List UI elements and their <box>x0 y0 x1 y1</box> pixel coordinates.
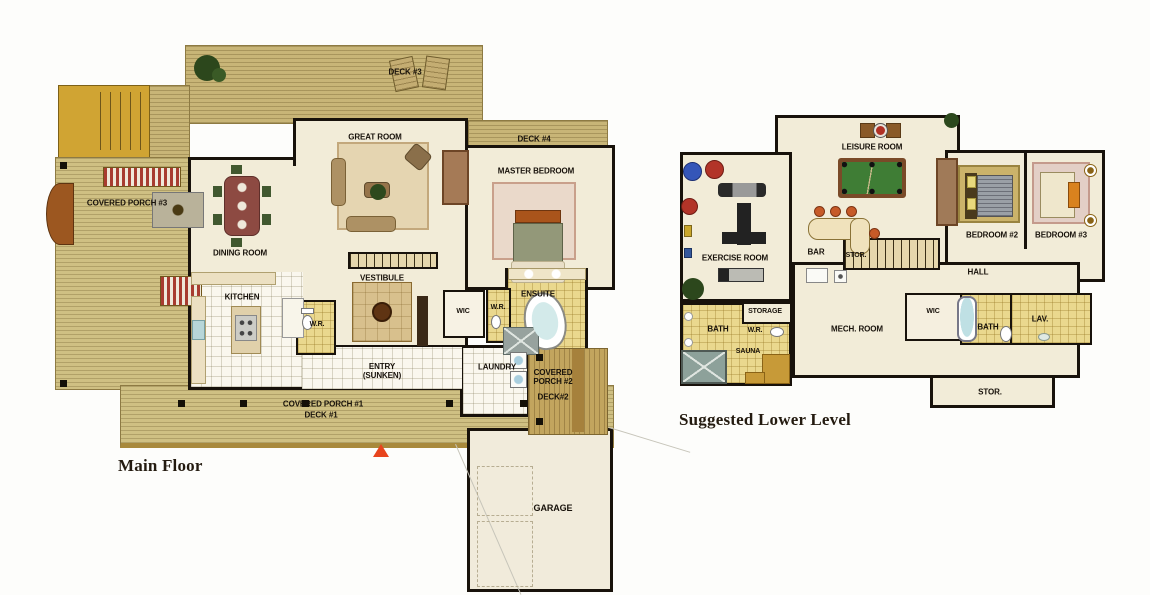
room-label-deck2: DECK#2 <box>538 392 569 401</box>
nightstand <box>1084 214 1097 227</box>
pillow <box>967 198 976 210</box>
porch-post <box>536 418 543 425</box>
plant <box>944 113 959 128</box>
game-cabinet <box>886 123 901 138</box>
room-label-wic-lower: WIC <box>926 308 939 316</box>
tv-cabinet <box>417 296 428 346</box>
room-label-leisure-room: LEISURE ROOM <box>842 142 903 151</box>
room-label-dining-room: DINING ROOM <box>213 248 267 257</box>
porch-post <box>536 354 543 361</box>
room-label-bath-right: BATH <box>977 322 998 331</box>
plant <box>212 68 226 82</box>
porch-bench <box>103 167 181 187</box>
room-label-kitchen: KITCHEN <box>225 292 260 301</box>
main-floor-title: Main Floor <box>118 456 203 476</box>
bed <box>513 223 563 263</box>
bed-headboard <box>515 210 561 223</box>
garage-door-dashed <box>477 466 533 516</box>
toilet <box>1000 326 1012 342</box>
dining-chair <box>213 214 222 225</box>
kitchen-sink <box>192 320 205 340</box>
dryer <box>510 371 527 388</box>
dining-table <box>224 176 260 236</box>
pool-table <box>838 158 906 198</box>
stone-fireplace <box>936 158 958 226</box>
toilet <box>770 327 784 337</box>
porch-post <box>446 400 453 407</box>
room-label-lav: LAV. <box>1032 314 1049 323</box>
room-label-wr-lower: W.R. <box>748 327 763 335</box>
room-label-storage: STORAGE <box>748 308 782 316</box>
plant <box>370 184 386 200</box>
room-label-stor-stairs: STOR. <box>846 252 867 260</box>
room-label-great-room: GREAT ROOM <box>348 132 402 141</box>
porch-post <box>178 400 185 407</box>
weight-bench <box>718 268 764 282</box>
room-label-covered-porch2: COVERED PORCH #2 <box>529 368 577 386</box>
room-label-bath-left: BATH <box>707 324 728 333</box>
fridge <box>282 298 304 338</box>
bar-back-counter <box>806 268 828 283</box>
room-label-deck4: DECK #4 <box>517 134 550 143</box>
bed-accent <box>1068 182 1080 208</box>
room-label-entry: ENTRY (SUNKEN) <box>359 362 405 380</box>
dartboard <box>874 124 887 137</box>
porch-post <box>60 380 67 387</box>
north-marker <box>373 444 389 457</box>
bed <box>977 175 1013 217</box>
bathtub <box>957 296 977 342</box>
room-label-wr-left: W.R. <box>310 321 325 329</box>
weight-machine <box>722 232 766 244</box>
plant <box>682 278 704 300</box>
vanity-sinks <box>508 268 586 280</box>
lower-level-title: Suggested Lower Level <box>679 410 851 430</box>
lav-sink <box>1038 333 1050 341</box>
bath-sink <box>684 312 693 321</box>
room-label-wic: WIC <box>456 308 469 316</box>
bar-stool <box>830 206 841 217</box>
room-label-bar: BAR <box>807 247 824 256</box>
bedroom-divider-wall <box>1024 153 1027 249</box>
porch-post <box>60 162 67 169</box>
bar-stool <box>846 206 857 217</box>
bar-stool <box>814 206 825 217</box>
room-label-wr-right: W.R. <box>491 304 506 312</box>
bar-stool <box>869 228 880 239</box>
dining-chair <box>262 214 271 225</box>
dining-chair <box>262 186 271 197</box>
room-label-covered-porch1: COVERED PORCH #1 <box>283 399 363 408</box>
bath-sink <box>684 338 693 347</box>
floor-plan-sheet: DECK #3 GREAT ROOM DECK #4 MASTER BEDROO… <box>0 0 1150 595</box>
shower <box>503 327 539 355</box>
kitchen-counter <box>191 272 276 285</box>
fireplace <box>442 150 469 205</box>
lav-room <box>1010 293 1092 345</box>
bar-sink <box>834 270 847 283</box>
room-label-ensuite: ENSUITE <box>521 289 555 298</box>
sauna-bench <box>745 372 765 384</box>
porch-table <box>152 192 204 228</box>
sofa <box>346 216 396 232</box>
room-label-sauna: SAUNA <box>736 348 760 356</box>
room-label-garage: GARAGE <box>534 503 573 513</box>
gym-mat <box>684 225 692 237</box>
main-stairs <box>348 252 438 269</box>
room-label-master-bedroom: MASTER BEDROOM <box>498 166 574 175</box>
room-label-covered-porch3: COVERED PORCH #3 <box>87 198 167 207</box>
dining-chair <box>231 165 242 174</box>
room-label-bedroom2: BEDROOM #2 <box>966 230 1018 239</box>
sofa <box>331 158 346 206</box>
room-label-hall: HALL <box>968 267 989 276</box>
room-label-vestibule: VESTIBULE <box>360 273 404 282</box>
treadmill <box>718 183 766 197</box>
bar-counter <box>850 218 870 254</box>
vestibule-medallion <box>372 302 392 322</box>
toilet <box>301 308 314 314</box>
wic-lower-room <box>905 293 962 341</box>
sauna-bench <box>762 354 790 384</box>
deck-2-dark-band <box>572 349 584 432</box>
toilet <box>491 315 501 329</box>
porch-post <box>520 400 527 407</box>
exercise-ball-red <box>681 198 698 215</box>
kitchen-counter <box>191 296 206 384</box>
dining-chair <box>213 186 222 197</box>
room-label-laundry: LAUNDRY <box>478 362 516 371</box>
nightstand <box>1084 164 1097 177</box>
exercise-ball-red <box>705 160 724 179</box>
room-label-exercise-room: EXERCISE ROOM <box>702 253 768 262</box>
stove <box>235 315 257 341</box>
lounge-chair <box>422 55 450 90</box>
dining-chair <box>231 238 242 247</box>
exercise-ball-blue <box>683 162 702 181</box>
garage-door-dashed <box>477 521 533 587</box>
room-label-deck3: DECK #3 <box>388 67 421 76</box>
shower <box>681 350 727 384</box>
room-label-deck1: DECK #1 <box>304 410 337 419</box>
room-label-mech-room: MECH. ROOM <box>831 324 883 333</box>
game-cabinet <box>860 123 875 138</box>
porch-post <box>240 400 247 407</box>
room-label-stor-bottom: STOR. <box>978 387 1002 396</box>
gym-mat <box>684 248 692 258</box>
porch-awning <box>46 183 74 245</box>
pillow <box>967 176 976 188</box>
room-label-bedroom3: BEDROOM #3 <box>1035 230 1087 239</box>
